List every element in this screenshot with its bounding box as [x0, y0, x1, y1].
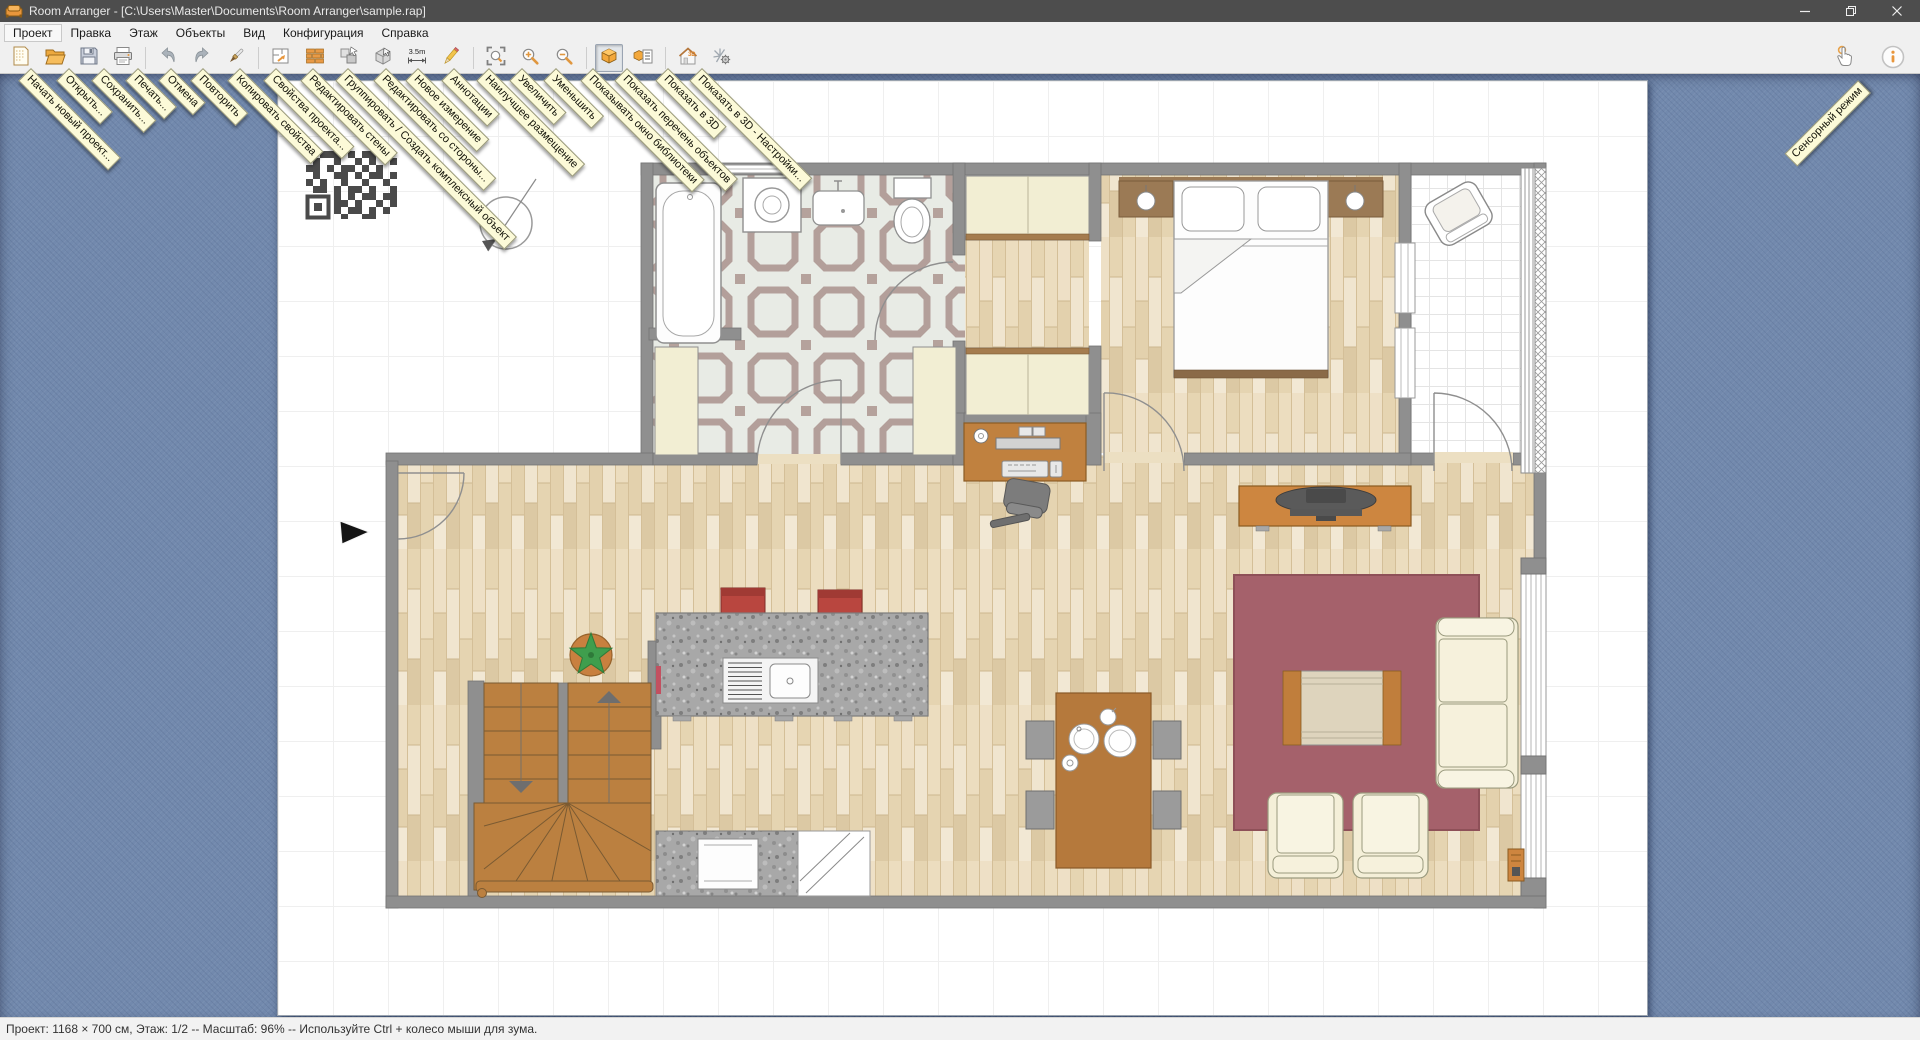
bathtub-inner [663, 191, 714, 336]
stool-edge [721, 588, 765, 596]
touch-hand-icon [1832, 44, 1858, 75]
potted-plant[interactable] [570, 633, 612, 676]
toolbar-separator [145, 47, 146, 69]
best-placement-button[interactable] [482, 44, 510, 72]
svg-text:3.5m: 3.5m [409, 47, 426, 56]
corridor-floor [965, 236, 1089, 348]
svg-text:3D: 3D [688, 52, 696, 58]
sofa[interactable] [1436, 618, 1518, 788]
open-folder-icon [44, 45, 66, 72]
minimize-button[interactable] [1782, 0, 1828, 22]
desk[interactable] [964, 423, 1086, 481]
app-icon [5, 4, 23, 18]
measure-icon: 3.5m [406, 45, 428, 72]
dining-chair[interactable] [1026, 721, 1054, 759]
sink[interactable] [813, 191, 864, 225]
dining-chair[interactable] [1026, 791, 1054, 829]
object-list-button[interactable] [629, 44, 657, 72]
undo-icon [157, 45, 179, 72]
show-3d-button[interactable]: 3D [674, 44, 702, 72]
group-objects-button[interactable] [335, 44, 363, 72]
menu-objects[interactable]: Объекты [167, 24, 235, 42]
brush-icon [225, 45, 247, 72]
annotations-button[interactable] [437, 44, 465, 72]
status-bar: Проект: 1168 × 700 см, Этаж: 1/2 -- Масш… [0, 1017, 1920, 1040]
zoom-in-icon [519, 45, 541, 72]
magazine-rack[interactable] [1508, 849, 1524, 881]
workspace-background [0, 74, 1920, 1017]
close-button[interactable] [1874, 0, 1920, 22]
menu-project[interactable]: Проект [4, 24, 62, 42]
edit-from-side-button[interactable] [369, 44, 397, 72]
library-window-button[interactable] [595, 44, 623, 72]
toolbar: 3.5m 3D [0, 43, 1920, 74]
open-button[interactable] [41, 44, 69, 72]
dining-chair[interactable] [1153, 721, 1181, 759]
dining-chair[interactable] [1153, 791, 1181, 829]
pencil-icon [440, 45, 462, 72]
wardrobe-bottom-edge [966, 348, 1089, 354]
status-text: Проект: 1168 × 700 см, Этаж: 1/2 -- Масш… [6, 1022, 537, 1036]
sink-drain [841, 209, 845, 213]
house-3d-icon: 3D [677, 45, 699, 72]
island-handle [656, 666, 661, 694]
show-3d-settings-button[interactable] [708, 44, 736, 72]
floor-plan-icon [270, 45, 292, 72]
menu-help[interactable]: Справка [373, 24, 438, 42]
touch-mode-button[interactable] [1831, 45, 1859, 73]
room-arranger-window: Room Arranger - [C:\Users\Master\Documen… [0, 0, 1920, 1040]
double-bed[interactable] [1174, 181, 1328, 378]
armchair-left[interactable] [1268, 793, 1343, 878]
new-project-button[interactable] [7, 44, 35, 72]
new-measurement-button[interactable]: 3.5m [403, 44, 431, 72]
folding-table[interactable] [798, 831, 870, 896]
object-list-icon [632, 45, 654, 72]
undo-button[interactable] [154, 44, 182, 72]
toolbar-separator [258, 47, 259, 69]
save-floppy-icon [78, 45, 100, 72]
print-icon [112, 45, 134, 72]
zoom-in-button[interactable] [516, 44, 544, 72]
closet-right[interactable] [913, 347, 956, 455]
copy-properties-button[interactable] [222, 44, 250, 72]
title-bar: Room Arranger - [C:\Users\Master\Documen… [0, 0, 1920, 22]
redo-icon [191, 45, 213, 72]
3d-settings-icon [711, 45, 733, 72]
compass-object[interactable] [480, 179, 536, 251]
qr-code[interactable] [306, 151, 397, 219]
group-objects-icon [338, 45, 360, 72]
menu-floor[interactable]: Этаж [120, 24, 167, 42]
new-document-icon [10, 45, 32, 72]
coffee-table[interactable] [1283, 671, 1401, 745]
corridor [964, 176, 1089, 528]
drawing-canvas[interactable] [277, 80, 1648, 1016]
menu-configuration[interactable]: Конфигурация [274, 24, 373, 42]
tv [1276, 487, 1376, 521]
dining-table[interactable] [1056, 693, 1151, 868]
info-button[interactable] [1879, 45, 1907, 73]
toolbar-separator [586, 47, 587, 69]
living-room-window [1521, 558, 1546, 893]
stool-edge [818, 590, 862, 598]
floor-plan [278, 81, 1647, 1015]
zoom-out-icon [553, 45, 575, 72]
edit-walls-button[interactable] [301, 44, 329, 72]
kitchen-counter[interactable] [656, 831, 870, 896]
closet-left[interactable] [655, 347, 698, 455]
fit-view-icon [485, 45, 507, 72]
kitchen-island[interactable] [656, 613, 928, 721]
print-button[interactable] [109, 44, 137, 72]
toolbar-separator [473, 47, 474, 69]
library-cube-icon [598, 45, 620, 72]
save-button[interactable] [75, 44, 103, 72]
menu-edit[interactable]: Правка [62, 24, 121, 42]
washing-machine[interactable] [743, 178, 801, 232]
brick-wall-icon [304, 45, 326, 72]
toolbar-separator [665, 47, 666, 69]
menu-view[interactable]: Вид [234, 24, 274, 42]
menu-bar: Проект Правка Этаж Объекты Вид Конфигура… [0, 22, 1920, 43]
redo-button[interactable] [188, 44, 216, 72]
window-title: Room Arranger - [C:\Users\Master\Documen… [29, 4, 1782, 18]
cube-cursor-icon [372, 45, 394, 72]
armchair-right[interactable] [1353, 793, 1428, 878]
project-properties-button[interactable] [267, 44, 295, 72]
wardrobe-top-edge [966, 234, 1089, 240]
toilet[interactable] [894, 178, 931, 243]
restore-button[interactable] [1828, 0, 1874, 22]
tv-cabinet[interactable] [1239, 486, 1411, 531]
zoom-out-button[interactable] [550, 44, 578, 72]
info-icon [1880, 44, 1906, 75]
